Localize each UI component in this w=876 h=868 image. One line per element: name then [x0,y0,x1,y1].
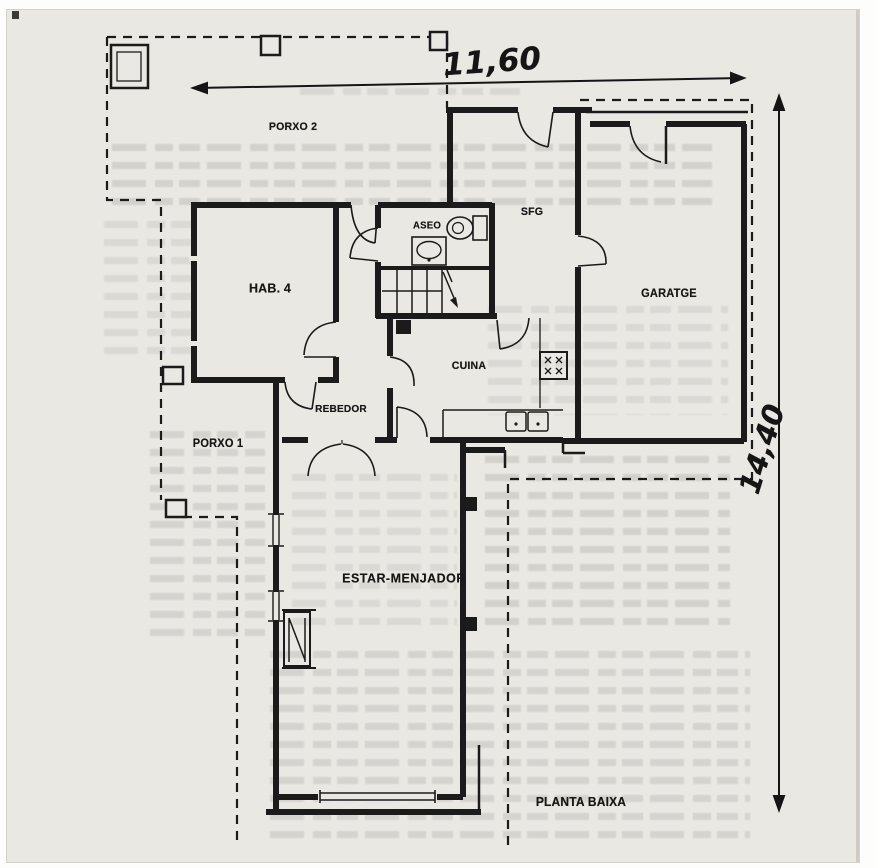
arrowhead-left [193,83,207,93]
plan-caption: PLANTA BAIXA [536,795,626,809]
stove-icon [545,357,562,374]
toilet-icon [453,223,464,234]
arrowhead-up [774,96,784,110]
room-label-porxo-1: PORXO 1 [193,438,243,450]
arrowhead-down [774,796,784,810]
door-arcs [285,112,661,476]
kitchen-sink-icon [514,422,517,425]
room-label-estar-menjador: ESTAR-MENJADOR [342,571,466,586]
door-sfg [518,112,553,147]
pillar [117,52,141,81]
door-garage-west [578,236,606,266]
windows [189,256,437,803]
arrowhead-right [731,73,744,83]
washbasin-icon [427,258,430,261]
walls-exterior [194,110,746,812]
door-garage-north [630,126,661,162]
pillar [261,36,280,55]
toilet-icon [447,217,473,239]
door-kitchen-west [390,357,414,386]
window-glazing [273,515,435,800]
staircase-icon [382,268,458,315]
room-label-aseo: ASEO [413,221,441,232]
door-corridor [351,205,378,243]
washbasin-icon [417,242,441,259]
room-label-rebedor: REBEDOR [315,403,367,415]
window-jamb-ticks [268,514,435,803]
room-label-hab-4: HAB. 4 [249,281,291,296]
door-entry [397,407,427,438]
french-door-right [343,444,375,476]
french-door-left [308,444,341,476]
stove-icon [540,352,567,379]
column [396,320,411,334]
room-label-sfg: SFG [521,206,543,218]
toilet-icon [473,216,487,240]
door-aseo [350,228,378,261]
pillar [166,500,186,517]
kitchen-sink-icon [528,412,548,431]
width-dimension-label: 11,60 [442,41,542,84]
room-label-porxo-2: PORXO 2 [269,121,317,133]
plan-drawing [0,0,876,868]
room-label-cuina: CUINA [452,360,486,372]
room-label-garatge: GARATGE [641,288,697,300]
kitchen-sink-icon [506,412,526,431]
walls-detail [479,112,748,812]
door-hab4 [304,322,336,357]
kitchen-counter [443,410,563,437]
fireplace-icon [289,618,305,662]
door-kitchen-north [497,318,529,349]
kitchen-sink-icon [536,422,539,425]
pillar [163,367,183,384]
door-rebedor [285,382,316,409]
floor-plan-scan: PORXO 2 HAB. 4 ASEO SFG GARATGE CUINA RE… [0,0,876,868]
stair-arrowhead [450,297,458,308]
